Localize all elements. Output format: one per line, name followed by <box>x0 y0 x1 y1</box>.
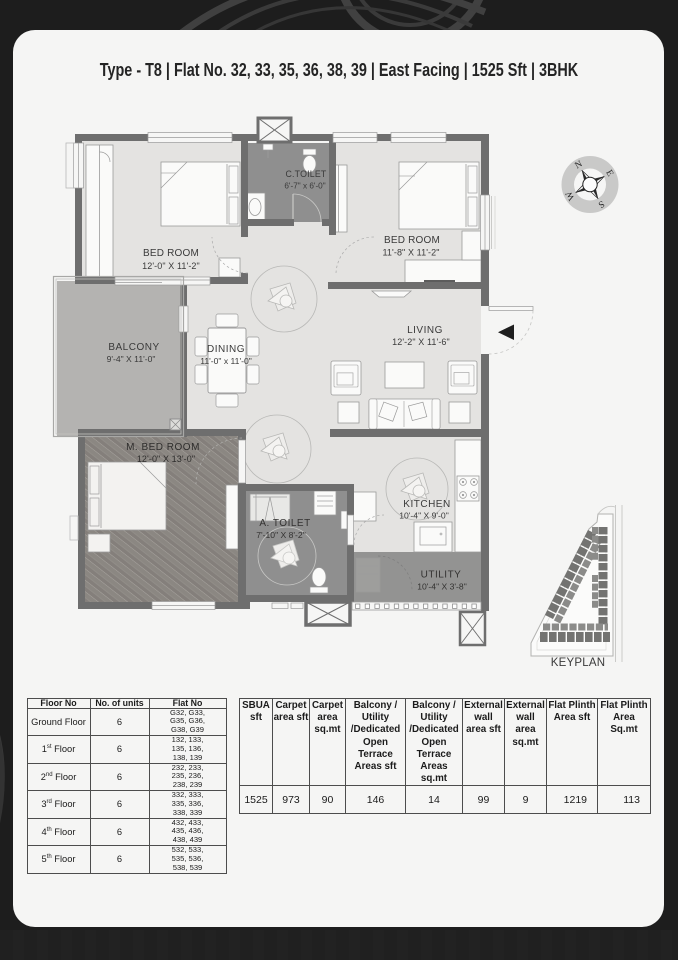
svg-text:BED ROOM: BED ROOM <box>384 235 440 246</box>
svg-text:9'-4" X 11'-0": 9'-4" X 11'-0" <box>107 354 156 364</box>
svg-text:7'-10" X 8'-2": 7'-10" X 8'-2" <box>256 530 306 540</box>
svg-text:BED ROOM: BED ROOM <box>143 248 199 259</box>
svg-text:LIVING: LIVING <box>407 325 443 336</box>
svg-text:BALCONY: BALCONY <box>108 342 159 353</box>
svg-text:C.TOILET: C.TOILET <box>285 169 326 179</box>
svg-text:12'-0" X 13'-0": 12'-0" X 13'-0" <box>137 454 195 464</box>
svg-text:UTILITY: UTILITY <box>421 570 462 581</box>
svg-text:12'-0" X 11'-2": 12'-0" X 11'-2" <box>142 261 200 271</box>
svg-text:DINING: DINING <box>207 344 245 355</box>
svg-text:6'-7" x 6'-0": 6'-7" x 6'-0" <box>284 182 325 191</box>
svg-text:M. BED ROOM: M. BED ROOM <box>126 442 200 453</box>
svg-text:KEYPLAN: KEYPLAN <box>551 657 605 669</box>
svg-text:12'-2" X 11'-6": 12'-2" X 11'-6" <box>392 337 450 347</box>
svg-text:A. TOILET: A. TOILET <box>259 518 310 529</box>
svg-text:10'-4" X 3'-8": 10'-4" X 3'-8" <box>417 582 467 592</box>
svg-text:10'-4" X 9'-0": 10'-4" X 9'-0" <box>399 511 449 521</box>
svg-text:11'-0" x 11'-0": 11'-0" x 11'-0" <box>200 356 252 366</box>
svg-text:11'-8" X 11'-2": 11'-8" X 11'-2" <box>382 248 439 258</box>
svg-text:KITCHEN: KITCHEN <box>403 499 450 510</box>
